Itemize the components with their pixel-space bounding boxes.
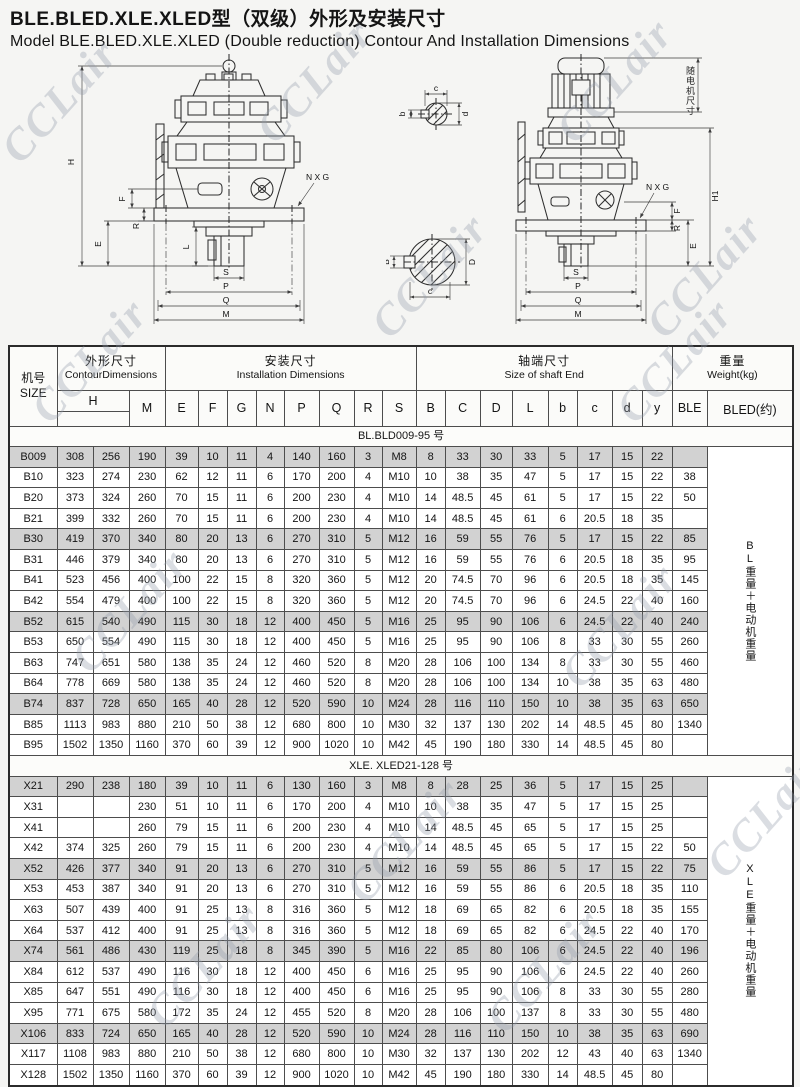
table-cell: 455 xyxy=(284,1003,319,1024)
table-cell: 340 xyxy=(129,879,165,900)
table-cell: 80 xyxy=(165,529,198,550)
table-cell: M20 xyxy=(382,1003,416,1024)
table-cell: 24.5 xyxy=(577,920,612,941)
table-cell: 308 xyxy=(57,447,93,468)
table-cell: 675 xyxy=(93,1003,129,1024)
table-cell: 490 xyxy=(129,632,165,653)
table-cell: 900 xyxy=(284,735,319,756)
table-cell: 11 xyxy=(227,817,256,838)
table-cell: 15 xyxy=(198,838,227,859)
table-cell: 446 xyxy=(57,550,93,571)
table-cell: 74.5 xyxy=(445,570,480,591)
table-cell: 20 xyxy=(198,550,227,571)
table-cell: 10 xyxy=(548,694,577,715)
table-cell: 45 xyxy=(480,508,512,529)
table-cell: 32 xyxy=(416,1044,445,1065)
table-cell: 387 xyxy=(93,879,129,900)
table-cell: 310 xyxy=(319,858,354,879)
table-cell: 116 xyxy=(165,982,198,1003)
table-cell: 15 xyxy=(227,570,256,591)
table-cell: 45 xyxy=(612,1064,642,1085)
table-cell: 3 xyxy=(354,447,382,468)
table-row: X957716755801723524124555208M20281061001… xyxy=(9,1003,793,1024)
table-cell: 30 xyxy=(198,611,227,632)
table-cell: 561 xyxy=(57,941,93,962)
table-cell: 30 xyxy=(198,982,227,1003)
table-cell: 5 xyxy=(548,447,577,468)
table-cell xyxy=(93,817,129,838)
drawing-bled-side-view: H1 N X G F R E S P Q M xyxy=(488,50,800,344)
dim-label-P-right: P xyxy=(575,281,581,291)
table-cell: 45 xyxy=(416,1064,445,1085)
table-cell: 12 xyxy=(198,467,227,488)
table-row: B00930825619039101141401603M883330335171… xyxy=(9,447,793,468)
table-cell xyxy=(57,817,93,838)
table-cell: M24 xyxy=(382,694,416,715)
table-cell: 210 xyxy=(165,1044,198,1065)
table-cell: 540 xyxy=(93,611,129,632)
table-cell: 12 xyxy=(256,735,284,756)
table-cell: 18 xyxy=(612,879,642,900)
cell-size: X64 xyxy=(9,920,57,941)
table-cell: 28 xyxy=(416,694,445,715)
table-row: X846125374901163018124004506M16259590106… xyxy=(9,961,793,982)
table-cell: 325 xyxy=(93,838,129,859)
table-cell: 17 xyxy=(577,838,612,859)
table-cell: M10 xyxy=(382,817,416,838)
table-cell: 38 xyxy=(672,467,707,488)
table-cell: 35 xyxy=(642,879,672,900)
table-cell: 40 xyxy=(198,1023,227,1044)
table-cell: 86 xyxy=(512,858,548,879)
table-cell: 74.5 xyxy=(445,591,480,612)
table-row: B526155404901153018124004505M16259590106… xyxy=(9,611,793,632)
table-cell: 270 xyxy=(284,550,319,571)
table-cell: 80 xyxy=(480,941,512,962)
table-cell: 5 xyxy=(354,550,382,571)
dim-label-S-right: S xyxy=(573,267,579,277)
table-cell: 651 xyxy=(93,653,129,674)
table-cell: 480 xyxy=(672,673,707,694)
table-cell: M12 xyxy=(382,550,416,571)
table-cell: 39 xyxy=(227,1064,256,1085)
table-cell: 18 xyxy=(227,982,256,1003)
table-cell: 86 xyxy=(512,879,548,900)
table-cell: 983 xyxy=(93,714,129,735)
table-cell: 323 xyxy=(57,467,93,488)
table-cell: 79 xyxy=(165,838,198,859)
table-cell: 138 xyxy=(165,673,198,694)
table-cell: 25 xyxy=(198,900,227,921)
table-cell: 59 xyxy=(445,858,480,879)
table-cell: 230 xyxy=(319,838,354,859)
table-cell: 210 xyxy=(165,714,198,735)
table-cell: 170 xyxy=(284,467,319,488)
column-header-G: G xyxy=(227,390,256,426)
table-cell: 330 xyxy=(512,1064,548,1085)
column-header-D: D xyxy=(480,390,512,426)
table-cell: 460 xyxy=(284,653,319,674)
dim-label-M: M xyxy=(222,309,229,319)
table-cell: 63 xyxy=(642,673,672,694)
table-row: X4237432526079151162002304M101448.545655… xyxy=(9,838,793,859)
table-cell: 116 xyxy=(445,694,480,715)
table-cell: 63 xyxy=(642,1023,672,1044)
cell-size: B74 xyxy=(9,694,57,715)
table-cell: 1502 xyxy=(57,735,93,756)
table-cell: 15 xyxy=(612,817,642,838)
table-cell: M20 xyxy=(382,673,416,694)
table-row: B637476515801383524124605208M20281061001… xyxy=(9,653,793,674)
dim-label-L: L xyxy=(181,244,191,249)
cell-size: X128 xyxy=(9,1064,57,1085)
table-cell: 55 xyxy=(642,653,672,674)
table-cell: 590 xyxy=(319,694,354,715)
table-cell: 360 xyxy=(319,591,354,612)
table-cell: 18 xyxy=(612,508,642,529)
table-cell: 82 xyxy=(512,920,548,941)
table-cell: 480 xyxy=(672,1003,707,1024)
table-cell: 22 xyxy=(198,591,227,612)
column-header-M: M xyxy=(129,390,165,426)
table-cell: 290 xyxy=(57,776,93,797)
table-cell: 130 xyxy=(480,1044,512,1065)
table-row: B3041937034080201362703105M1216595576517… xyxy=(9,529,793,550)
table-cell: 1350 xyxy=(93,1064,129,1085)
table-cell: 12 xyxy=(256,653,284,674)
dim-label-R-right: R xyxy=(672,225,682,231)
cell-size: X52 xyxy=(9,858,57,879)
table-cell: 10 xyxy=(354,1023,382,1044)
table-cell: 230 xyxy=(129,467,165,488)
table-cell: 35 xyxy=(480,467,512,488)
table-cell: 1350 xyxy=(93,735,129,756)
table-cell: 230 xyxy=(319,508,354,529)
table-cell: 310 xyxy=(319,879,354,900)
table-cell: M12 xyxy=(382,570,416,591)
table-cell: 10 xyxy=(354,1064,382,1085)
table-cell: 106 xyxy=(512,632,548,653)
cell-size: X31 xyxy=(9,797,57,818)
table-cell: 360 xyxy=(319,570,354,591)
table-cell: 450 xyxy=(319,982,354,1003)
table-cell: 75 xyxy=(672,858,707,879)
cell-size: X74 xyxy=(9,941,57,962)
table-cell: 12 xyxy=(256,632,284,653)
table-cell: 260 xyxy=(129,488,165,509)
table-cell: 12 xyxy=(256,714,284,735)
table-cell: 15 xyxy=(612,797,642,818)
table-cell: 40 xyxy=(642,920,672,941)
table-cell: 17 xyxy=(577,488,612,509)
table-cell: 55 xyxy=(642,1003,672,1024)
table-cell: 5 xyxy=(354,632,382,653)
dim-label-F: F xyxy=(117,196,127,201)
table-cell: 507 xyxy=(57,900,93,921)
table-cell: 25 xyxy=(416,632,445,653)
table-row: B2037332426070151162002304M101448.545615… xyxy=(9,488,793,509)
table-cell: M8 xyxy=(382,447,416,468)
table-cell: 12 xyxy=(256,611,284,632)
table-cell: 260 xyxy=(672,632,707,653)
table-cell: 50 xyxy=(198,714,227,735)
column-header-B: B xyxy=(416,390,445,426)
table-cell: 580 xyxy=(129,1003,165,1024)
table-cell: 28 xyxy=(227,1023,256,1044)
table-cell: 379 xyxy=(93,550,129,571)
table-cell: 340 xyxy=(129,529,165,550)
table-cell: 48.5 xyxy=(577,714,612,735)
table-cell: 180 xyxy=(480,735,512,756)
table-cell: 138 xyxy=(165,653,198,674)
table-cell: 106 xyxy=(512,941,548,962)
table-cell: 18 xyxy=(612,550,642,571)
table-cell: 63 xyxy=(642,1044,672,1065)
table-cell: 30 xyxy=(198,961,227,982)
table-cell: 1020 xyxy=(319,1064,354,1085)
table-cell: 8 xyxy=(548,982,577,1003)
table-cell: 554 xyxy=(57,591,93,612)
table-cell: 15 xyxy=(227,591,256,612)
table-cell: 76 xyxy=(512,529,548,550)
table-cell: 137 xyxy=(445,714,480,735)
table-cell: 20 xyxy=(416,591,445,612)
table-cell: 310 xyxy=(319,550,354,571)
table-cell: 22 xyxy=(612,611,642,632)
table-cell: 116 xyxy=(165,961,198,982)
table-cell: 17 xyxy=(577,858,612,879)
table-cell: 165 xyxy=(165,1023,198,1044)
table-cell: 82 xyxy=(512,900,548,921)
table-cell: 18 xyxy=(227,611,256,632)
table-cell: 91 xyxy=(165,879,198,900)
cell-size: X106 xyxy=(9,1023,57,1044)
table-cell: 10 xyxy=(354,1044,382,1065)
table-cell: M20 xyxy=(382,653,416,674)
table-cell: 8 xyxy=(416,447,445,468)
table-cell: 110 xyxy=(672,879,707,900)
table-cell: 8 xyxy=(548,653,577,674)
column-group-header: 安装尺寸Installation Dimensions xyxy=(165,346,416,390)
table-cell: 18 xyxy=(416,900,445,921)
column-header-y: y xyxy=(642,390,672,426)
table-cell: 280 xyxy=(672,982,707,1003)
table-cell: 6 xyxy=(256,797,284,818)
table-cell: 190 xyxy=(129,447,165,468)
table-cell: 24 xyxy=(227,673,256,694)
table-cell: 5 xyxy=(354,920,382,941)
cell-size: B52 xyxy=(9,611,57,632)
table-cell: 456 xyxy=(93,570,129,591)
table-cell: 59 xyxy=(445,879,480,900)
dim-label-F-right: F xyxy=(672,208,682,213)
table-cell: 8 xyxy=(256,570,284,591)
table-cell: 80 xyxy=(642,714,672,735)
table-cell: 172 xyxy=(165,1003,198,1024)
table-cell: 38 xyxy=(227,1044,256,1065)
cell-size: X117 xyxy=(9,1044,57,1065)
table-cell: 13 xyxy=(227,900,256,921)
table-cell: 16 xyxy=(416,858,445,879)
table-cell: 690 xyxy=(672,1023,707,1044)
table-cell: 30 xyxy=(480,447,512,468)
column-header-d: d xyxy=(612,390,642,426)
table-cell: 30 xyxy=(612,982,642,1003)
table-row: X6350743940091251383163605M1218696582620… xyxy=(9,900,793,921)
table-cell: 65 xyxy=(512,838,548,859)
table-row: X5242637734091201362703105M1216595586517… xyxy=(9,858,793,879)
table-cell: 399 xyxy=(57,508,93,529)
table-cell: 6 xyxy=(548,570,577,591)
table-cell: 45 xyxy=(612,714,642,735)
table-cell: M12 xyxy=(382,858,416,879)
table-cell: 400 xyxy=(284,961,319,982)
table-cell: 8 xyxy=(256,591,284,612)
section-label: XLE. XLED21-128 号 xyxy=(9,756,793,777)
table-cell: 4 xyxy=(354,488,382,509)
table-cell: 18 xyxy=(227,632,256,653)
table-cell: 724 xyxy=(93,1023,129,1044)
table-cell: 8 xyxy=(354,1003,382,1024)
table-cell: 91 xyxy=(165,900,198,921)
table-cell: 12 xyxy=(548,1044,577,1065)
table-cell: 22 xyxy=(642,838,672,859)
table-cell: 200 xyxy=(319,797,354,818)
table-cell: 80 xyxy=(165,550,198,571)
table-cell: 35 xyxy=(642,508,672,529)
table-cell: 160 xyxy=(672,591,707,612)
table-cell: 270 xyxy=(284,858,319,879)
shaft-section-large: B D c xyxy=(386,224,478,306)
table-cell: 11 xyxy=(227,467,256,488)
table-cell: M24 xyxy=(382,1023,416,1044)
table-cell: 486 xyxy=(93,941,129,962)
table-cell: 24.5 xyxy=(577,941,612,962)
cell-size: B85 xyxy=(9,714,57,735)
table-row: X10683372465016540281252059010M242811611… xyxy=(9,1023,793,1044)
table-cell: 450 xyxy=(319,632,354,653)
table-cell: M16 xyxy=(382,941,416,962)
table-cell: M16 xyxy=(382,632,416,653)
table-cell: 48.5 xyxy=(445,838,480,859)
table-cell: M12 xyxy=(382,879,416,900)
table-cell: 5 xyxy=(354,591,382,612)
table-cell: 370 xyxy=(93,529,129,550)
table-cell: 200 xyxy=(319,467,354,488)
table-cell: 374 xyxy=(57,838,93,859)
table-cell: 24.5 xyxy=(577,591,612,612)
section-label: BL.BLD009-95 号 xyxy=(9,426,793,447)
table-cell: 22 xyxy=(642,488,672,509)
table-cell: 33 xyxy=(577,653,612,674)
table-cell: 48.5 xyxy=(577,1064,612,1085)
column-group-header: 轴端尺寸Size of shaft End xyxy=(416,346,672,390)
table-cell: 412 xyxy=(93,920,129,941)
table-cell: 137 xyxy=(445,1044,480,1065)
table-cell: 260 xyxy=(129,817,165,838)
table-cell: 15 xyxy=(612,488,642,509)
table-row: X74561486430119251883453905M162285801066… xyxy=(9,941,793,962)
table-cell: 202 xyxy=(512,714,548,735)
table-cell: 256 xyxy=(93,447,129,468)
table-cell: 25 xyxy=(480,776,512,797)
table-cell: 8 xyxy=(416,776,445,797)
table-cell: 6 xyxy=(548,879,577,900)
table-cell: 400 xyxy=(284,632,319,653)
table-cell: 373 xyxy=(57,488,93,509)
table-cell: 38 xyxy=(577,694,612,715)
dim-label-Q-right: Q xyxy=(575,295,582,305)
table-cell: 25 xyxy=(642,797,672,818)
column-header-BLED(约): BLED(约) xyxy=(707,390,793,426)
table-cell: 13 xyxy=(227,858,256,879)
table-cell: 270 xyxy=(284,879,319,900)
column-header-H: H xyxy=(57,390,129,426)
table-cell: 800 xyxy=(319,714,354,735)
table-cell xyxy=(672,817,707,838)
dim-label-b-small: b xyxy=(398,111,407,116)
table-cell: 537 xyxy=(57,920,93,941)
table-cell: 1340 xyxy=(672,1044,707,1065)
table-cell: 400 xyxy=(129,900,165,921)
dim-label-d-small: d xyxy=(460,111,470,116)
table-cell: 11 xyxy=(227,447,256,468)
table-cell: 650 xyxy=(129,1023,165,1044)
table-cell: 22 xyxy=(642,858,672,879)
table-cell: 35 xyxy=(642,550,672,571)
table-cell: 65 xyxy=(480,920,512,941)
table-cell: 36 xyxy=(512,776,548,797)
table-cell xyxy=(672,447,707,468)
table-cell xyxy=(672,508,707,529)
table-cell: 165 xyxy=(165,694,198,715)
column-header-c: c xyxy=(577,390,612,426)
table-cell: 14 xyxy=(416,838,445,859)
table-cell: 202 xyxy=(512,1044,548,1065)
table-row: X117110898388021050381268080010M30321371… xyxy=(9,1044,793,1065)
table-cell: 490 xyxy=(129,982,165,1003)
table-cell: 460 xyxy=(284,673,319,694)
table-cell: 106 xyxy=(512,982,548,1003)
table-cell: 612 xyxy=(57,961,93,982)
table-row: X856475514901163018124004506M16259590106… xyxy=(9,982,793,1003)
table-cell: 20.5 xyxy=(577,570,612,591)
table-cell: 106 xyxy=(445,1003,480,1024)
table-cell: 8 xyxy=(354,673,382,694)
table-cell: 833 xyxy=(57,1023,93,1044)
table-cell: 150 xyxy=(512,1023,548,1044)
table-cell: 10 xyxy=(354,694,382,715)
table-cell: M10 xyxy=(382,838,416,859)
table-cell: 10 xyxy=(548,673,577,694)
table-cell: 10 xyxy=(198,447,227,468)
column-header-E: E xyxy=(165,390,198,426)
table-cell: M12 xyxy=(382,529,416,550)
table-cell: 400 xyxy=(129,570,165,591)
table-cell: 95 xyxy=(672,550,707,571)
column-header-L: L xyxy=(512,390,548,426)
table-cell: 490 xyxy=(129,961,165,982)
cell-size: B41 xyxy=(9,570,57,591)
table-row: B95150213501160370603912900102010M424519… xyxy=(9,735,793,756)
table-cell: 196 xyxy=(672,941,707,962)
table-cell: M42 xyxy=(382,1064,416,1085)
table-cell: 669 xyxy=(93,673,129,694)
table-cell: 340 xyxy=(129,858,165,879)
table-cell: 76 xyxy=(512,550,548,571)
table-cell: 90 xyxy=(480,961,512,982)
table-cell: 20 xyxy=(198,529,227,550)
